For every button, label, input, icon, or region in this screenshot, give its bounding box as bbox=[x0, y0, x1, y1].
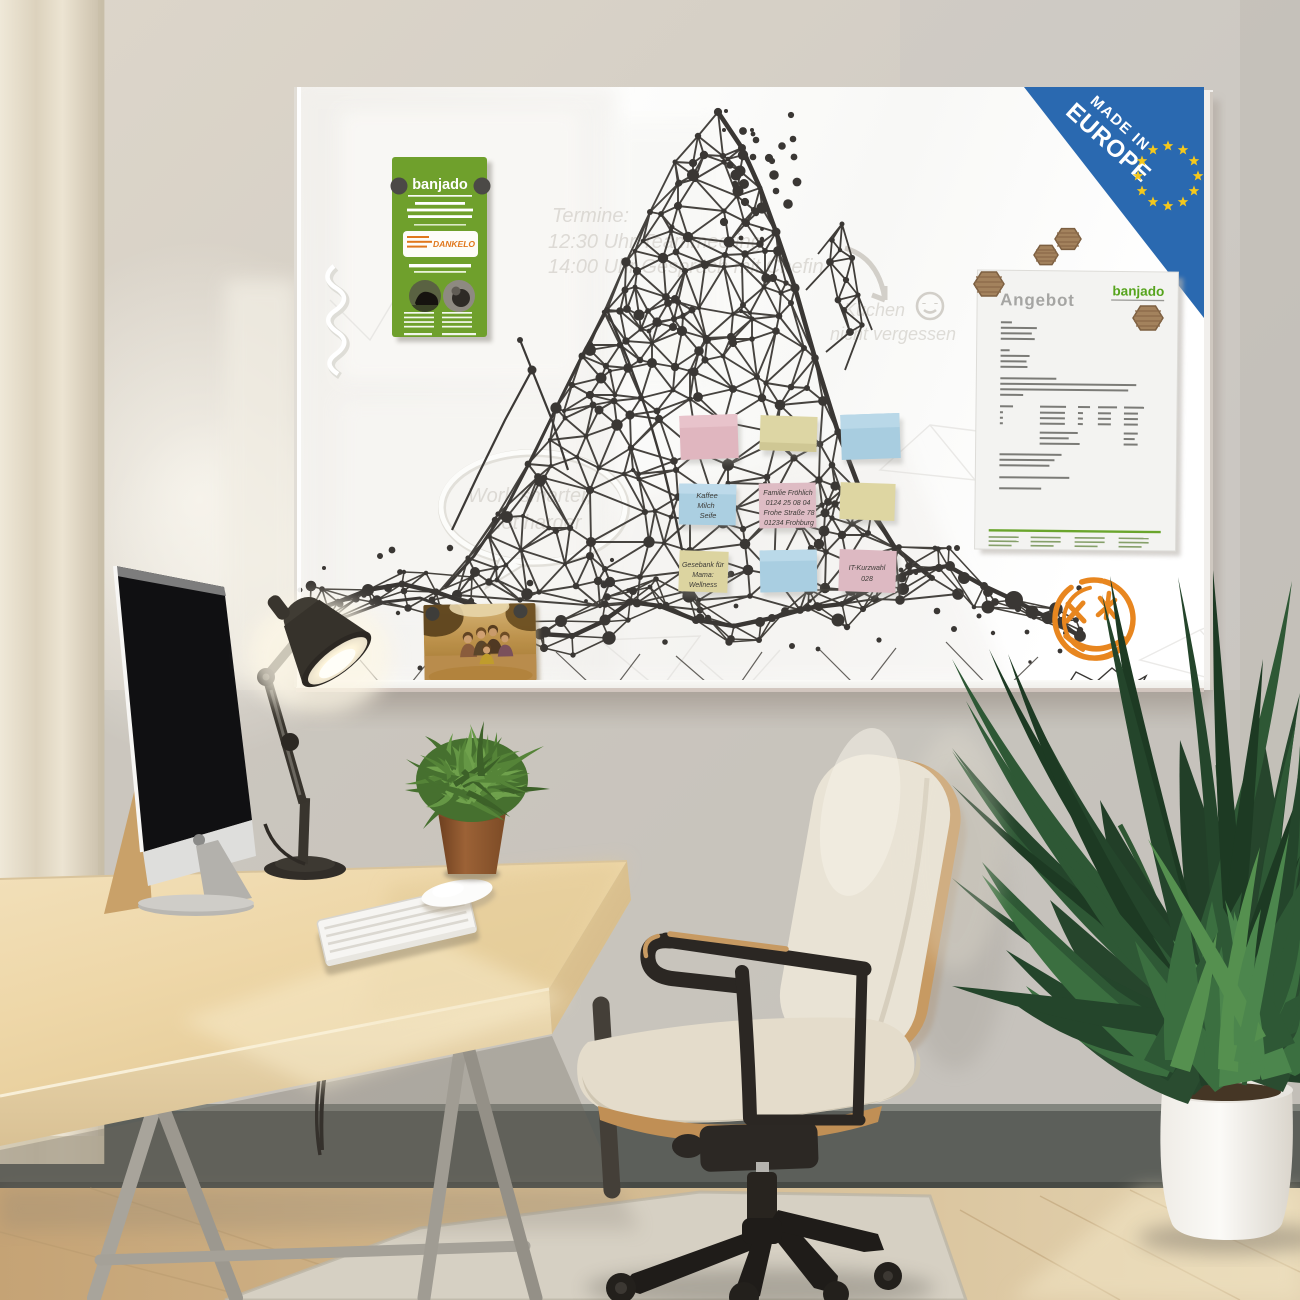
svg-text:Wellness: Wellness bbox=[689, 582, 718, 589]
svg-text:banjado: banjado bbox=[412, 177, 468, 193]
svg-text:Mama:: Mama: bbox=[692, 572, 713, 579]
svg-text:Angebot: Angebot bbox=[1000, 290, 1075, 310]
svg-text:0124 25 08 04: 0124 25 08 04 bbox=[766, 500, 811, 507]
svg-text:028: 028 bbox=[861, 576, 873, 583]
svg-text:Seife: Seife bbox=[700, 511, 717, 520]
svg-text:Milch: Milch bbox=[697, 501, 714, 510]
svg-text:IT-Kurzwahl: IT-Kurzwahl bbox=[849, 565, 886, 572]
svg-text:Frohe Straße 78: Frohe Straße 78 bbox=[764, 510, 815, 517]
svg-text:DANKELO: DANKELO bbox=[433, 239, 475, 249]
svg-text:Gesebank für: Gesebank für bbox=[682, 562, 725, 569]
svg-text:Familie Fröhlich: Familie Fröhlich bbox=[763, 490, 813, 497]
svg-text:Kaffee: Kaffee bbox=[696, 491, 717, 500]
svg-text:Termine:: Termine: bbox=[552, 205, 629, 227]
svg-text:banjado: banjado bbox=[1112, 283, 1164, 299]
svg-text:01234 Frohburg: 01234 Frohburg bbox=[764, 520, 814, 527]
